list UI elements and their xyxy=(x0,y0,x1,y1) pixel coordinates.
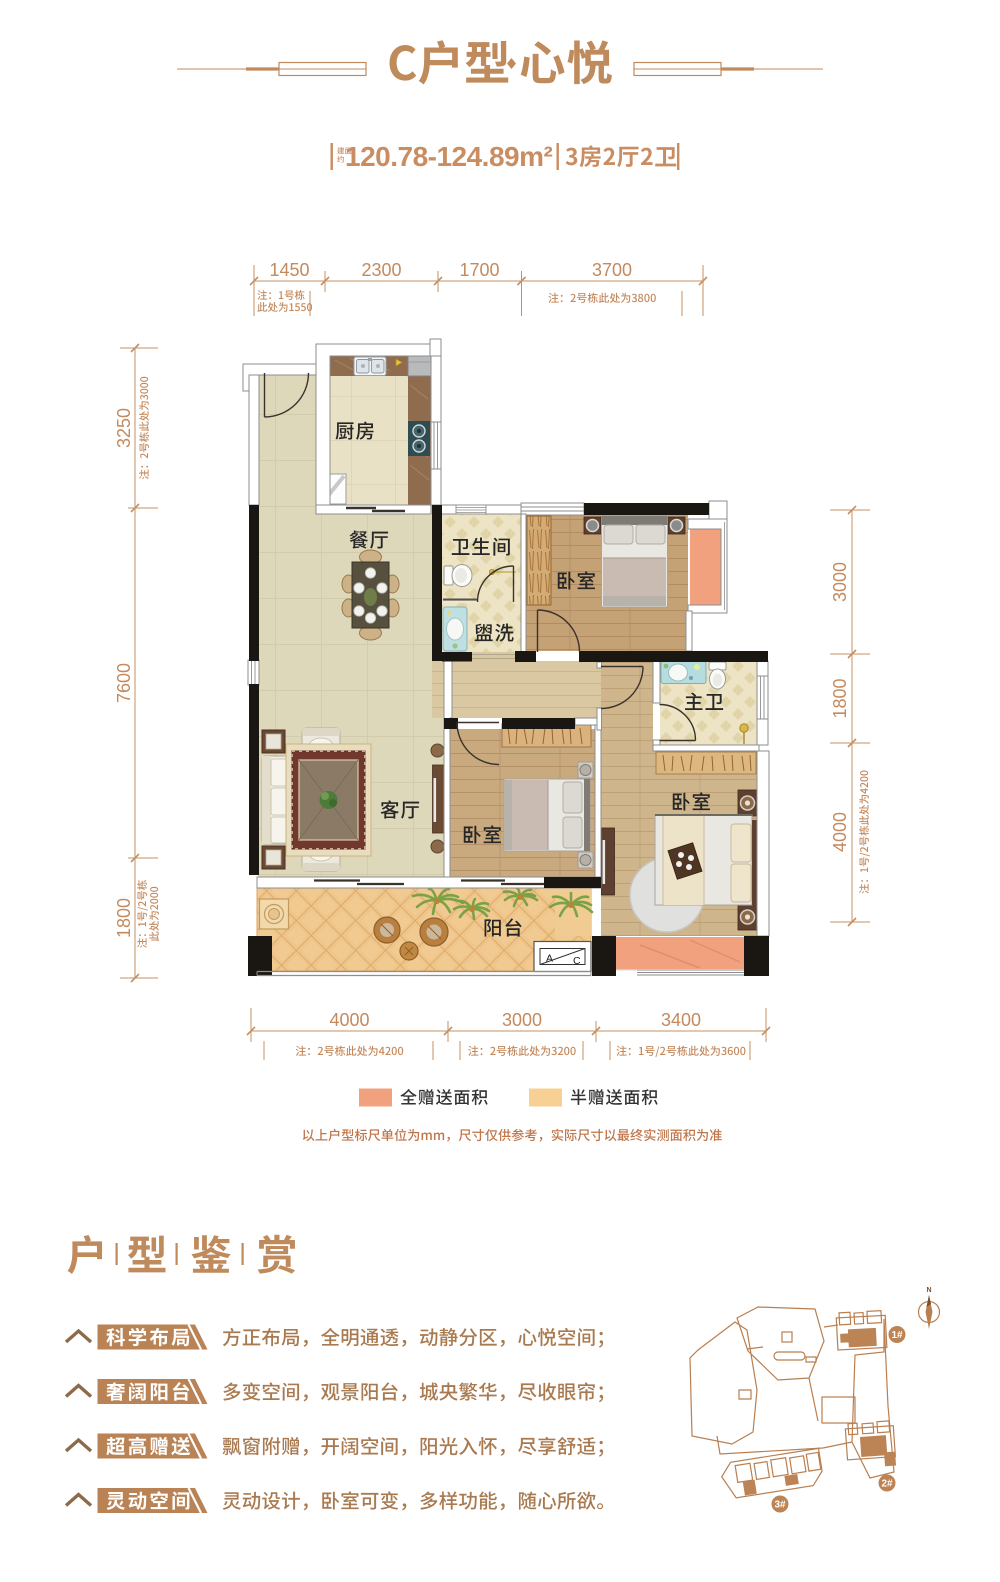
svg-text:7600: 7600 xyxy=(114,663,134,703)
svg-text:C: C xyxy=(573,955,581,967)
svg-text:3#: 3# xyxy=(774,1500,786,1511)
svg-text:1450: 1450 xyxy=(269,260,309,280)
svg-text:1800: 1800 xyxy=(114,898,134,938)
svg-text:2300: 2300 xyxy=(361,260,401,280)
svg-text:3700: 3700 xyxy=(592,260,632,280)
svg-text:120.78-124.89m²: 120.78-124.89m² xyxy=(345,141,553,172)
svg-text:N: N xyxy=(926,1287,931,1294)
svg-text:1700: 1700 xyxy=(459,260,499,280)
svg-text:4000: 4000 xyxy=(329,1010,369,1030)
svg-text:3000: 3000 xyxy=(830,562,850,602)
svg-text:1800: 1800 xyxy=(830,678,850,718)
svg-text:2#: 2# xyxy=(881,1479,893,1490)
svg-text:A: A xyxy=(546,953,553,965)
svg-text:3400: 3400 xyxy=(661,1010,701,1030)
svg-text:3250: 3250 xyxy=(114,408,134,448)
svg-text:3000: 3000 xyxy=(502,1010,542,1030)
svg-text:4000: 4000 xyxy=(830,812,850,852)
svg-text:1#: 1# xyxy=(891,1330,903,1341)
